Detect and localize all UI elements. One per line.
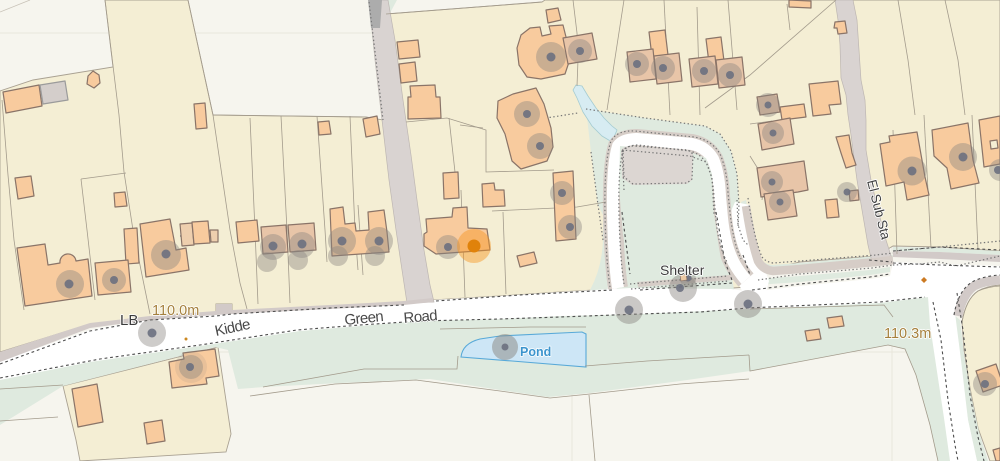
svg-text:Pond: Pond bbox=[520, 345, 551, 359]
svg-text:Road: Road bbox=[403, 307, 438, 327]
svg-text:110.0m: 110.0m bbox=[152, 303, 199, 319]
svg-text:Shelter: Shelter bbox=[660, 262, 705, 278]
svg-text:110.3m: 110.3m bbox=[884, 326, 931, 342]
svg-text:LB: LB bbox=[120, 312, 138, 329]
